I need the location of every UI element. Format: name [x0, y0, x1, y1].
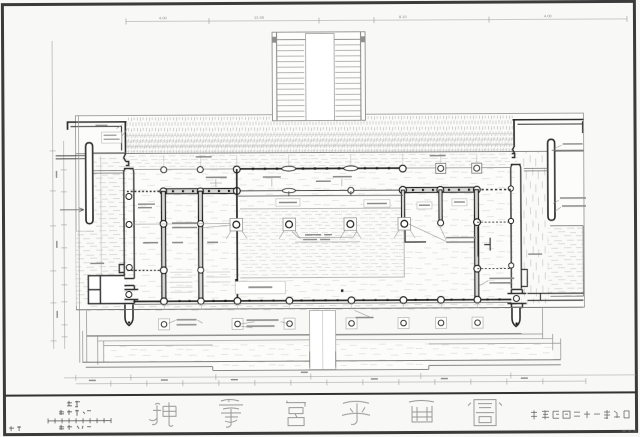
svg-text:12.45: 12.45 [254, 15, 265, 20]
svg-text:4.00: 4.00 [544, 13, 553, 18]
svg-text:8.10: 8.10 [399, 14, 408, 19]
svg-text:4.00: 4.00 [159, 15, 168, 20]
